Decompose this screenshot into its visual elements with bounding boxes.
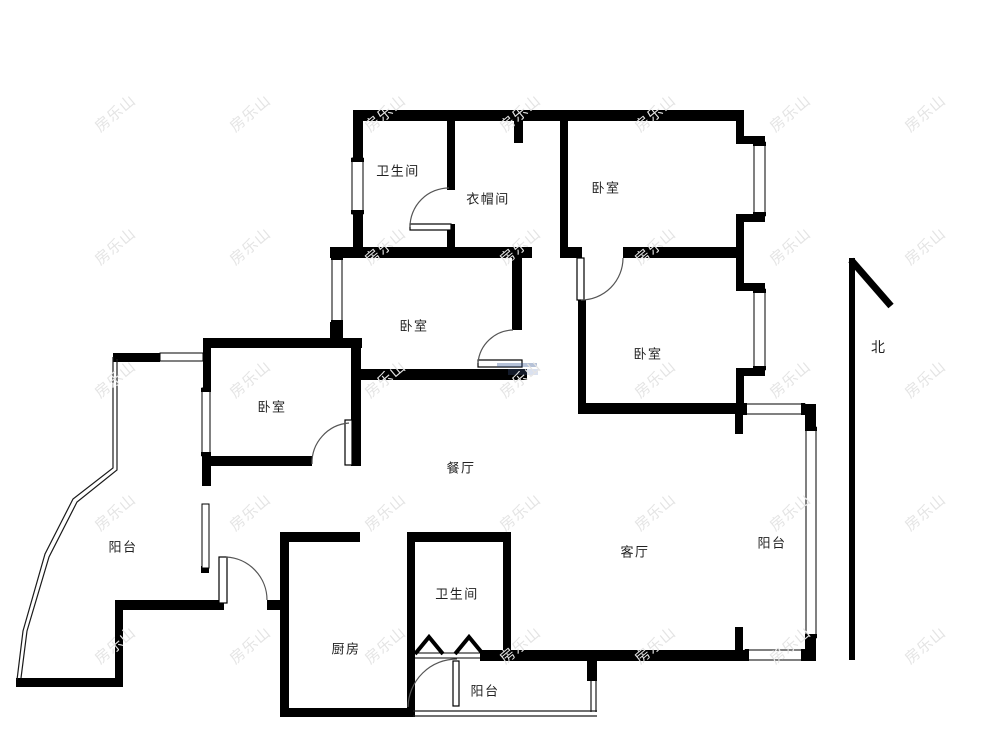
room-label-dining-room: 餐厅 xyxy=(446,458,475,477)
room-label-balcony-bottom: 阳台 xyxy=(470,681,499,700)
walls xyxy=(16,110,816,717)
room-label-bedroom-right: 卧室 xyxy=(633,344,662,363)
room-label-kitchen: 厨房 xyxy=(331,639,360,658)
north-arrow-icon xyxy=(851,258,891,660)
room-label-bathroom-top: 卫生间 xyxy=(376,161,420,180)
folding-door xyxy=(413,637,483,658)
room-label-balcony-right: 阳台 xyxy=(757,533,786,552)
room-label-bedroom-left: 卧室 xyxy=(257,397,286,416)
room-label-bedroom-middle: 卧室 xyxy=(399,316,428,335)
room-label-balcony-left: 阳台 xyxy=(108,537,137,556)
floorplan-drawing xyxy=(0,0,1000,750)
room-label-living-room: 客厅 xyxy=(620,542,649,561)
north-label: 北 xyxy=(871,337,885,357)
room-label-cloakroom: 衣帽间 xyxy=(466,189,510,208)
floorplan: 卫生间 衣帽间 卧室 卧室 卧室 卧室 餐厅 客厅 阳台 阳台 阳台 厨房 卫生… xyxy=(0,0,1000,750)
room-label-bathroom-bottom: 卫生间 xyxy=(435,584,479,603)
doors xyxy=(219,188,623,707)
room-label-bedroom-top-right: 卧室 xyxy=(591,178,620,197)
